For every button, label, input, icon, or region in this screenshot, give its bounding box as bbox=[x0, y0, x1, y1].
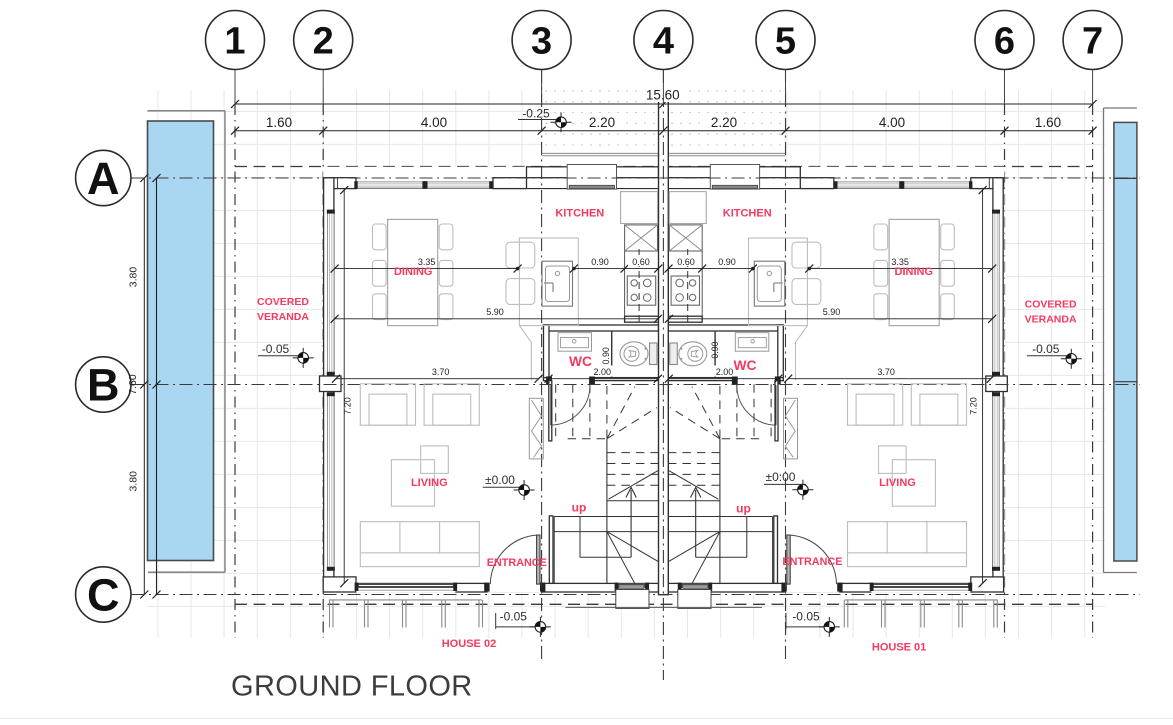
svg-text:B: B bbox=[87, 360, 120, 411]
svg-text:COVERED: COVERED bbox=[1025, 299, 1077, 311]
svg-text:C: C bbox=[87, 570, 120, 621]
svg-text:-0.25: -0.25 bbox=[522, 106, 550, 120]
svg-text:1.60: 1.60 bbox=[266, 115, 292, 130]
svg-text:-0.05: -0.05 bbox=[500, 610, 528, 624]
svg-text:15.60: 15.60 bbox=[646, 88, 680, 103]
svg-text:1: 1 bbox=[224, 21, 245, 63]
svg-text:0.90: 0.90 bbox=[591, 257, 609, 267]
svg-text:3: 3 bbox=[531, 21, 552, 63]
svg-text:±0:00: ±0:00 bbox=[766, 470, 796, 484]
svg-text:7.60: 7.60 bbox=[127, 374, 139, 395]
svg-text:3.80: 3.80 bbox=[128, 267, 140, 288]
svg-text:WC: WC bbox=[734, 358, 757, 373]
svg-text:6: 6 bbox=[994, 21, 1015, 63]
svg-text:KITCHEN: KITCHEN bbox=[723, 207, 772, 219]
svg-text:5.90: 5.90 bbox=[486, 307, 504, 317]
svg-text:2.00: 2.00 bbox=[716, 367, 734, 377]
svg-text:3.80: 3.80 bbox=[128, 471, 140, 492]
svg-text:7.20: 7.20 bbox=[343, 397, 353, 415]
svg-text:0.90: 0.90 bbox=[718, 257, 736, 267]
svg-text:COVERED: COVERED bbox=[257, 296, 309, 308]
svg-text:4: 4 bbox=[653, 21, 674, 63]
svg-text:-0.05: -0.05 bbox=[1032, 342, 1060, 356]
svg-text:2.20: 2.20 bbox=[589, 115, 615, 130]
svg-text:HOUSE 01: HOUSE 01 bbox=[872, 642, 926, 654]
svg-text:ENTRANCE: ENTRANCE bbox=[487, 557, 547, 569]
svg-text:5.90: 5.90 bbox=[823, 307, 841, 317]
svg-text:3.70: 3.70 bbox=[432, 367, 450, 377]
svg-text:LIVING: LIVING bbox=[879, 477, 916, 489]
svg-text:VERANDA: VERANDA bbox=[257, 311, 309, 323]
svg-text:±0.00: ±0.00 bbox=[485, 473, 515, 487]
svg-text:4.00: 4.00 bbox=[879, 115, 905, 130]
svg-text:3.70: 3.70 bbox=[877, 367, 895, 377]
svg-text:up: up bbox=[736, 502, 751, 516]
svg-text:0.90: 0.90 bbox=[601, 347, 611, 364]
svg-text:WC: WC bbox=[569, 354, 592, 369]
svg-text:5: 5 bbox=[775, 21, 796, 63]
svg-text:GROUND FLOOR: GROUND FLOOR bbox=[231, 671, 473, 703]
svg-text:2: 2 bbox=[313, 21, 334, 63]
svg-text:0.60: 0.60 bbox=[677, 257, 695, 267]
svg-text:-0.05: -0.05 bbox=[792, 610, 820, 624]
svg-text:7: 7 bbox=[1082, 21, 1103, 63]
svg-text:A: A bbox=[87, 153, 120, 204]
svg-text:7.20: 7.20 bbox=[968, 397, 978, 415]
svg-text:2.00: 2.00 bbox=[594, 367, 612, 377]
svg-text:VERANDA: VERANDA bbox=[1025, 314, 1077, 326]
svg-text:DINING: DINING bbox=[895, 266, 934, 278]
svg-text:0.60: 0.60 bbox=[632, 257, 650, 267]
svg-text:0.90: 0.90 bbox=[710, 341, 720, 358]
svg-text:ENTRANCE: ENTRANCE bbox=[782, 556, 842, 568]
svg-text:HOUSE 02: HOUSE 02 bbox=[442, 638, 496, 650]
svg-text:DINING: DINING bbox=[394, 266, 433, 278]
svg-text:2.20: 2.20 bbox=[711, 115, 737, 130]
svg-text:1.60: 1.60 bbox=[1035, 115, 1061, 130]
svg-text:-0.05: -0.05 bbox=[262, 342, 290, 356]
svg-text:4.00: 4.00 bbox=[421, 115, 447, 130]
svg-text:up: up bbox=[572, 501, 587, 515]
svg-text:LIVING: LIVING bbox=[411, 477, 448, 489]
svg-text:KITCHEN: KITCHEN bbox=[555, 207, 604, 219]
